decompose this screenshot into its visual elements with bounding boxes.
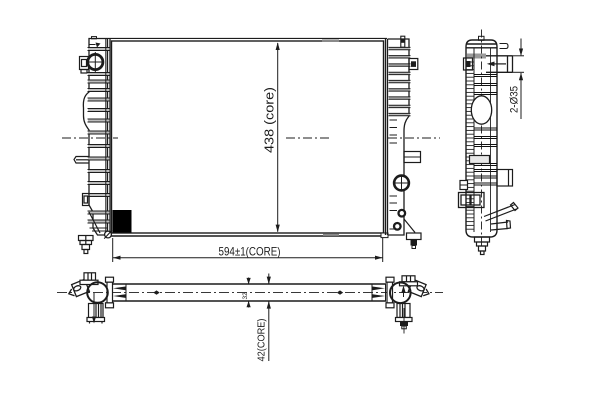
svg-text:42(CORE): 42(CORE) xyxy=(256,319,268,362)
svg-text:594±1(CORE): 594±1(CORE) xyxy=(219,245,281,259)
svg-text:438 (core): 438 (core) xyxy=(263,87,277,153)
svg-text:2-Ø35: 2-Ø35 xyxy=(509,86,521,113)
svg-text:32: 32 xyxy=(242,292,249,300)
